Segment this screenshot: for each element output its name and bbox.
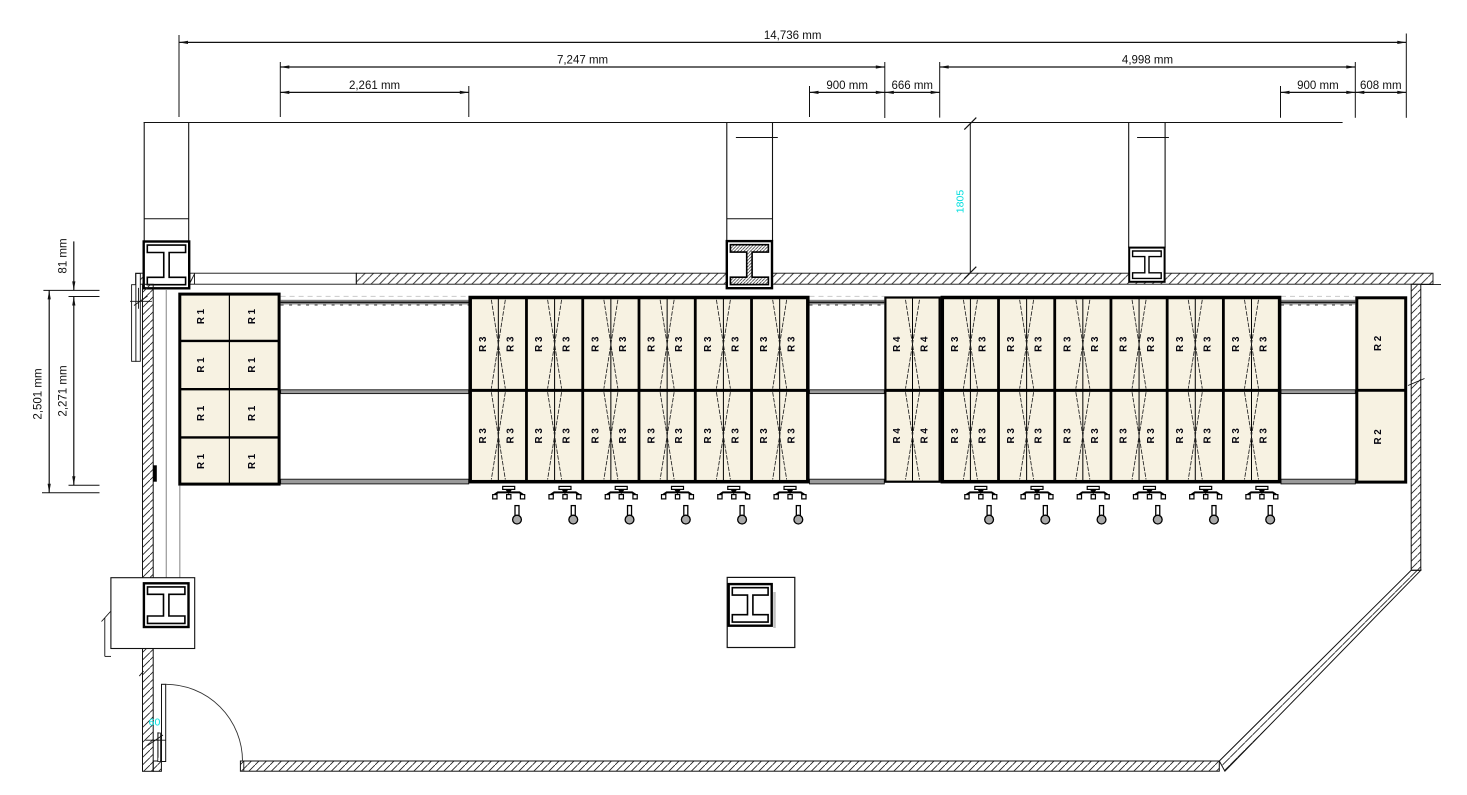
- svg-text:R 3: R 3: [730, 336, 741, 352]
- svg-text:R 3: R 3: [950, 336, 961, 352]
- svg-text:2,501 mm: 2,501 mm: [33, 368, 45, 419]
- svg-text:R 3: R 3: [1146, 336, 1157, 352]
- svg-text:R 3: R 3: [505, 428, 516, 444]
- svg-text:2,261 mm: 2,261 mm: [349, 80, 400, 92]
- svg-text:R 3: R 3: [674, 428, 685, 444]
- svg-text:R 3: R 3: [618, 428, 629, 444]
- svg-text:R 1: R 1: [196, 453, 207, 469]
- svg-text:14,736 mm: 14,736 mm: [764, 30, 822, 42]
- svg-text:R 3: R 3: [534, 428, 545, 444]
- svg-text:R 3: R 3: [1090, 428, 1101, 444]
- svg-text:R 3: R 3: [1202, 336, 1213, 352]
- svg-text:R 3: R 3: [1119, 336, 1130, 352]
- svg-text:608 mm: 608 mm: [1360, 80, 1402, 92]
- svg-text:R 3: R 3: [1119, 428, 1130, 444]
- svg-text:R 1: R 1: [196, 357, 207, 373]
- svg-text:R 3: R 3: [674, 336, 685, 352]
- svg-text:R 3: R 3: [703, 336, 714, 352]
- svg-text:R 3: R 3: [977, 336, 988, 352]
- svg-text:2,271 mm: 2,271 mm: [58, 365, 70, 416]
- svg-text:R 3: R 3: [1034, 336, 1045, 352]
- svg-text:R 1: R 1: [247, 405, 258, 421]
- svg-text:R 3: R 3: [1175, 428, 1186, 444]
- svg-text:R 3: R 3: [618, 336, 629, 352]
- svg-text:R 3: R 3: [562, 428, 573, 444]
- svg-text:900 mm: 900 mm: [1297, 80, 1339, 92]
- svg-text:R 3: R 3: [1062, 428, 1073, 444]
- svg-text:900 mm: 900 mm: [826, 80, 868, 92]
- svg-text:R 1: R 1: [247, 357, 258, 373]
- svg-text:7,247 mm: 7,247 mm: [557, 55, 608, 67]
- svg-text:R 3: R 3: [703, 428, 714, 444]
- svg-text:R 1: R 1: [196, 308, 207, 324]
- svg-text:R 3: R 3: [1175, 336, 1186, 352]
- svg-text:R 3: R 3: [647, 336, 658, 352]
- svg-text:R 3: R 3: [505, 336, 516, 352]
- svg-text:666 mm: 666 mm: [891, 80, 933, 92]
- svg-text:1805: 1805: [955, 190, 967, 214]
- svg-text:R 3: R 3: [478, 428, 489, 444]
- svg-text:R 3: R 3: [590, 428, 601, 444]
- svg-text:R 4: R 4: [920, 336, 931, 352]
- svg-text:R 1: R 1: [196, 405, 207, 421]
- svg-text:81 mm: 81 mm: [58, 238, 70, 273]
- svg-text:R 3: R 3: [1006, 336, 1017, 352]
- svg-text:R 3: R 3: [787, 336, 798, 352]
- svg-text:4,998 mm: 4,998 mm: [1122, 55, 1173, 67]
- svg-text:R 3: R 3: [759, 428, 770, 444]
- svg-text:R 3: R 3: [1202, 428, 1213, 444]
- svg-text:R 3: R 3: [759, 336, 770, 352]
- svg-text:R 1: R 1: [247, 453, 258, 469]
- svg-text:R 3: R 3: [647, 428, 658, 444]
- svg-text:R 2: R 2: [1373, 429, 1384, 445]
- svg-text:R 3: R 3: [950, 428, 961, 444]
- svg-text:R 3: R 3: [590, 336, 601, 352]
- svg-text:R 3: R 3: [977, 428, 988, 444]
- svg-text:R 3: R 3: [1034, 428, 1045, 444]
- svg-text:R 4: R 4: [920, 428, 931, 444]
- svg-text:60: 60: [149, 717, 161, 729]
- svg-text:R 3: R 3: [1006, 428, 1017, 444]
- svg-text:R 3: R 3: [1146, 428, 1157, 444]
- svg-text:R 1: R 1: [247, 308, 258, 324]
- svg-text:R 4: R 4: [892, 428, 903, 444]
- svg-text:R 3: R 3: [787, 428, 798, 444]
- svg-text:R 3: R 3: [562, 336, 573, 352]
- svg-text:R 2: R 2: [1373, 335, 1384, 351]
- svg-text:R 3: R 3: [730, 428, 741, 444]
- svg-text:R 4: R 4: [892, 336, 903, 352]
- svg-text:R 3: R 3: [1258, 428, 1269, 444]
- svg-text:R 3: R 3: [1258, 336, 1269, 352]
- svg-text:R 3: R 3: [1062, 336, 1073, 352]
- svg-text:R 3: R 3: [1231, 428, 1242, 444]
- svg-text:R 3: R 3: [1231, 336, 1242, 352]
- svg-text:R 3: R 3: [534, 336, 545, 352]
- svg-text:R 3: R 3: [478, 336, 489, 352]
- svg-text:R 3: R 3: [1090, 336, 1101, 352]
